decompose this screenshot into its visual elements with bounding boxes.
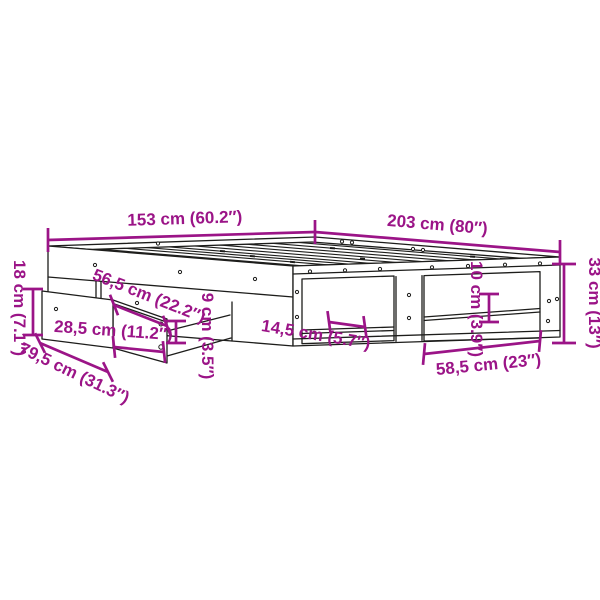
dimension-label-width: 153 cm (60.2″) xyxy=(127,207,242,230)
dimension-label-frame-height: 33 cm (13″) xyxy=(585,257,600,348)
dimension-label-length: 203 cm (80″) xyxy=(386,211,488,238)
dimension-label-shelf-gap-right: 10 cm (3.9″) xyxy=(467,261,486,357)
dimension-label-rail-gap: 9 cm (3.5″) xyxy=(198,293,217,380)
bed-frame-dimension-diagram: 153 cm (60.2″) 203 cm (80″) 33 cm (13″) … xyxy=(0,0,600,600)
dimension-tick xyxy=(423,343,425,365)
dimension-label-shelf-width: 58,5 cm (23″) xyxy=(435,350,542,379)
drawer-screw xyxy=(54,307,57,310)
